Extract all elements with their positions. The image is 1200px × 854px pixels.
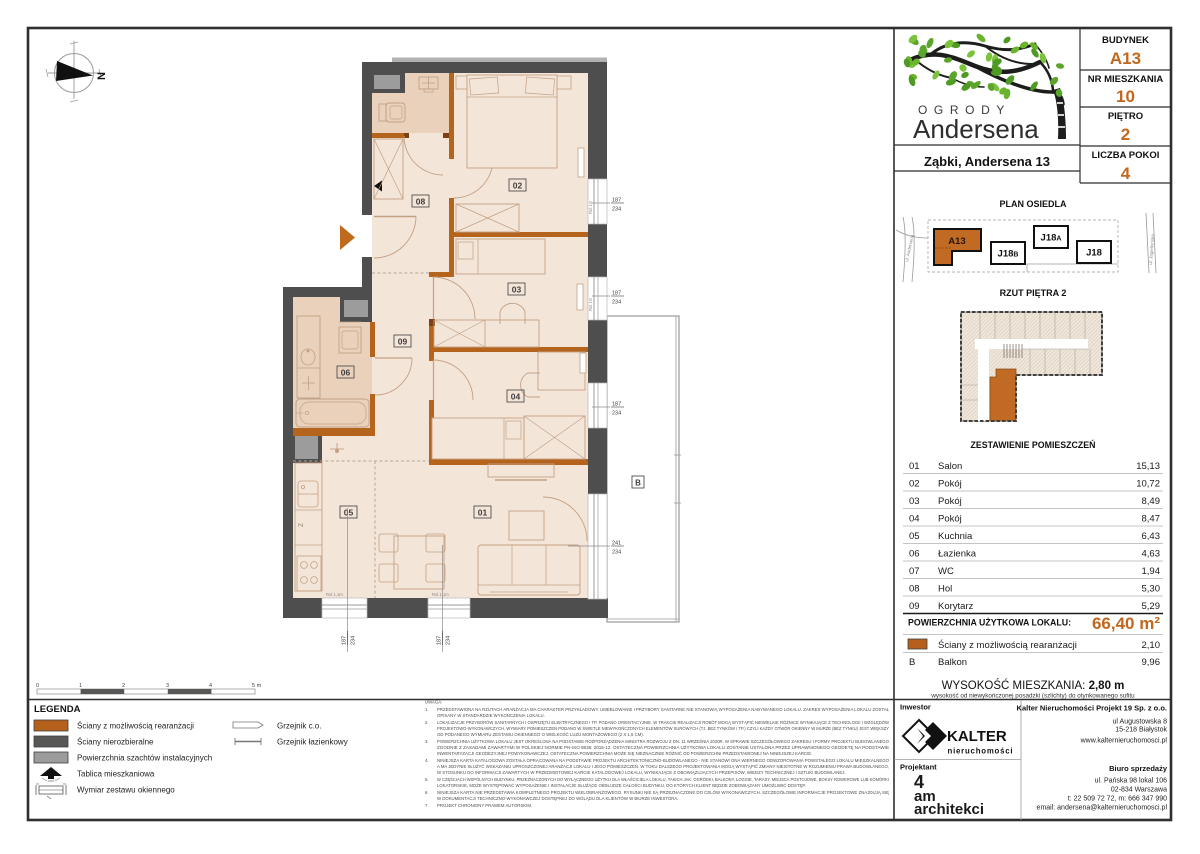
svg-text:03: 03	[909, 496, 920, 507]
svg-text:OD PODANEGO WYMIARU ZESTAWU OK: OD PODANEGO WYMIARU ZESTAWU OKIENNEGO O …	[437, 732, 644, 737]
svg-text:Rol.1m: Rol.1m	[588, 200, 593, 214]
svg-text:187: 187	[342, 636, 348, 645]
svg-text:OPISANY W STANDARDZIE WYKOŃCZE: OPISANY W STANDARDZIE WYKOŃCZENIA LOKALU…	[437, 713, 545, 718]
svg-text:LEGENDA: LEGENDA	[34, 704, 81, 715]
svg-text:Rol.1m: Rol.1m	[588, 297, 593, 311]
svg-text:POWIERZCHNIA UŻYTKOWA LOKALU J: POWIERZCHNIA UŻYTKOWA LOKALU JEST OKREŚL…	[437, 739, 890, 744]
svg-text:5,29: 5,29	[1142, 601, 1161, 612]
svg-text:Inwestor: Inwestor	[900, 703, 931, 712]
svg-text:WYSOKOŚĆ MIESZKANIA: 2,80 m: WYSOKOŚĆ MIESZKANIA: 2,80 m	[942, 679, 1125, 692]
svg-text:W CZĘŚCIACH WSPÓLNYCH BUDYNKU,: W CZĘŚCIACH WSPÓLNYCH BUDYNKU, PRZEZNACZ…	[437, 777, 889, 782]
svg-text:WC: WC	[938, 566, 954, 577]
svg-text:4,63: 4,63	[1142, 549, 1161, 560]
svg-text:Kalter Nieruchomości Projekt 1: Kalter Nieruchomości Projekt 19 Sp. z o.…	[1017, 704, 1167, 713]
svg-text:1: 1	[79, 683, 82, 689]
svg-text:Korytarz: Korytarz	[938, 601, 974, 612]
svg-text:2: 2	[122, 683, 125, 689]
svg-text:Ściany nierozbieralne: Ściany nierozbieralne	[77, 738, 154, 747]
svg-text:9,96: 9,96	[1142, 657, 1161, 668]
svg-text:01: 01	[909, 461, 920, 472]
svg-text:04: 04	[909, 514, 920, 525]
svg-text:05: 05	[344, 508, 354, 518]
svg-text:0: 0	[36, 683, 39, 689]
svg-text:234: 234	[612, 411, 621, 417]
svg-text:B: B	[909, 657, 915, 668]
svg-text:N: N	[96, 72, 108, 80]
svg-text:1.: 1.	[425, 707, 429, 712]
svg-text:15,13: 15,13	[1136, 461, 1160, 472]
svg-text:W STOSUNKU DO INFORMACJI ZAWAR: W STOSUNKU DO INFORMACJI ZAWARTYCH W PRZ…	[437, 770, 846, 775]
svg-text:187: 187	[612, 402, 621, 408]
svg-text:187: 187	[612, 291, 621, 297]
svg-text:J18: J18	[1086, 248, 1102, 259]
svg-text:PROJEKT CHRONIONY PRAWEM AUTOR: PROJEKT CHRONIONY PRAWEM AUTORSKIM.	[437, 803, 532, 808]
svg-text:B: B	[635, 479, 641, 488]
svg-text:BUDYNEK: BUDYNEK	[1102, 35, 1149, 46]
svg-text:Łazienka: Łazienka	[938, 549, 977, 560]
svg-text:5 m: 5 m	[252, 683, 262, 689]
svg-text:7.: 7.	[425, 803, 429, 808]
svg-text:04: 04	[511, 392, 521, 402]
svg-text:Rol.1,1m: Rol.1,1m	[326, 592, 343, 597]
svg-text:ul. Pańska 98 lokal 106: ul. Pańska 98 lokal 106	[1095, 778, 1167, 785]
svg-text:ZESTAWIENIE POMIESZCZEŃ: ZESTAWIENIE POMIESZCZEŃ	[971, 440, 1096, 450]
svg-text:ul Augustowska 8: ul Augustowska 8	[1113, 719, 1168, 726]
svg-text:08: 08	[416, 197, 426, 207]
svg-text:05: 05	[909, 531, 920, 542]
svg-text:POWIERZCHNIA UŻYTKOWA LOKALU:: POWIERZCHNIA UŻYTKOWA LOKALU:	[908, 618, 1071, 628]
svg-text:4.: 4.	[425, 758, 429, 763]
svg-text:6,43: 6,43	[1142, 531, 1161, 542]
svg-text:architekci: architekci	[914, 801, 984, 818]
svg-text:Salon: Salon	[938, 461, 962, 472]
svg-text:8,47: 8,47	[1142, 514, 1161, 525]
svg-text:INWENTARYZACJI GEODEZYJNEJ POW: INWENTARYZACJI GEODEZYJNEJ POWYKONAWCZEJ…	[437, 751, 812, 756]
svg-text:01: 01	[478, 508, 488, 518]
svg-text:A MA JEDYNIE SŁUŻYĆ WSKAZANIU: A MA JEDYNIE SŁUŻYĆ WSKAZANIU UPROSZCZON…	[437, 764, 889, 769]
svg-text:PLAN OSIEDLA: PLAN OSIEDLA	[999, 199, 1067, 209]
svg-text:nieruchomości: nieruchomości	[948, 747, 1014, 756]
svg-text:09: 09	[909, 601, 920, 612]
svg-text:3: 3	[166, 683, 169, 689]
svg-text:Pokój: Pokój	[938, 496, 962, 507]
svg-text:Grzejnik c.o.: Grzejnik c.o.	[277, 722, 321, 731]
svg-text:Z: Z	[298, 523, 305, 527]
svg-text:Tablica mieszkaniowa: Tablica mieszkaniowa	[77, 770, 155, 779]
svg-text:A13: A13	[1110, 49, 1141, 68]
svg-text:LICZBA POKOI: LICZBA POKOI	[1092, 150, 1160, 161]
svg-text:Ząbki, Andersena 13: Ząbki, Andersena 13	[924, 154, 1050, 169]
svg-text:5,30: 5,30	[1142, 584, 1161, 595]
svg-text:02: 02	[909, 479, 920, 490]
svg-text:NR MIESZKANIA: NR MIESZKANIA	[1088, 74, 1164, 85]
svg-text:2: 2	[1121, 125, 1130, 144]
svg-text:09: 09	[398, 337, 408, 347]
svg-text:2.: 2.	[425, 720, 429, 725]
svg-text:5.: 5.	[425, 777, 429, 782]
svg-text:Rol.1,1m: Rol.1,1m	[432, 592, 449, 597]
svg-text:Powierzchnia szachtów instalac: Powierzchnia szachtów instalacyjnych	[77, 754, 212, 763]
svg-text:234: 234	[351, 636, 357, 645]
svg-text:6.: 6.	[425, 790, 429, 795]
svg-text:10,72: 10,72	[1136, 479, 1160, 490]
svg-text:A13: A13	[948, 236, 965, 247]
svg-text:234: 234	[612, 207, 621, 213]
svg-text:KALTER: KALTER	[947, 728, 1007, 745]
svg-text:PROJEKTOWO-WYKONAWCZYCH. WYMIA: PROJEKTOWO-WYKONAWCZYCH. WYMIARY POMIESZ…	[437, 726, 889, 731]
svg-text:187: 187	[612, 198, 621, 204]
svg-text:NINIEJSZA KARTA NIE PRZEDSTAWI: NINIEJSZA KARTA NIE PRZEDSTAWIA KOMPLETN…	[437, 790, 889, 795]
svg-text:08: 08	[909, 584, 920, 595]
svg-text:Pokój: Pokój	[938, 479, 962, 490]
svg-text:Kuchnia: Kuchnia	[938, 531, 973, 542]
svg-text:Projektant: Projektant	[900, 763, 937, 772]
svg-text:8,49: 8,49	[1142, 496, 1161, 507]
svg-text:234: 234	[446, 636, 452, 645]
svg-text:4: 4	[1121, 164, 1131, 183]
svg-text:03: 03	[512, 285, 522, 295]
svg-text:Ściany z możliwością rearanżac: Ściany z możliwością rearanżacji	[77, 722, 194, 731]
svg-text:www.kalternieruchomosci.pl: www.kalternieruchomosci.pl	[1080, 738, 1168, 745]
svg-text:W DOKUMENTACJI TECHNICZNO-WYKO: W DOKUMENTACJI TECHNICZNO-WYKONAWCZEJ DO…	[437, 796, 678, 801]
svg-text:RZUT PIĘTRA 2: RZUT PIĘTRA 2	[1000, 288, 1067, 298]
svg-text:06: 06	[909, 549, 920, 560]
svg-text:wysokość od niewykończonej pos: wysokość od niewykończonej posadzki (szl…	[930, 693, 1135, 700]
svg-text:234: 234	[612, 550, 621, 556]
svg-text:LOKALIZACJE PRZYBORÓW SANITARN: LOKALIZACJE PRZYBORÓW SANITARNYCH I OSPR…	[437, 720, 890, 725]
svg-text:Biuro sprzedaży: Biuro sprzedaży	[1109, 764, 1168, 773]
svg-text:187: 187	[437, 636, 443, 645]
svg-text:Grzejnik łazienkowy: Grzejnik łazienkowy	[277, 738, 348, 747]
svg-text:email: andersena@kalternieruch: email: andersena@kalternieruchomosci.pl	[1037, 805, 1168, 812]
svg-text:241: 241	[612, 541, 621, 547]
svg-text:4: 4	[209, 683, 212, 689]
svg-text:LOKATORSKIE, MOŻE WYSTĘPOWAĆ W: LOKATORSKIE, MOŻE WYSTĘPOWAĆ WYPOSAŻENIE…	[437, 783, 806, 788]
svg-text:Andersena: Andersena	[913, 114, 1039, 144]
svg-text:07: 07	[909, 566, 920, 577]
svg-text:Pokój: Pokój	[938, 514, 962, 525]
svg-text:2,10: 2,10	[1142, 640, 1161, 651]
svg-text:02-834 Warszawa: 02-834 Warszawa	[1111, 787, 1167, 794]
svg-text:234: 234	[612, 300, 621, 306]
svg-text:t: 22 509 72 72, m: 666 347 99: t: 22 509 72 72, m: 666 347 990	[1068, 796, 1167, 803]
svg-text:10: 10	[1116, 87, 1135, 106]
svg-text:ZGODNIE Z ZASADAMI ZAWARTYMI W: ZGODNIE Z ZASADAMI ZAWARTYMI W POLSKIEJ …	[437, 745, 889, 750]
svg-text:06: 06	[341, 368, 351, 378]
svg-text:UWAGA:: UWAGA:	[425, 700, 442, 705]
svg-text:NINIEJSZA KARTA KATALOGOWA ZOS: NINIEJSZA KARTA KATALOGOWA ZOSTAŁA OPRAC…	[437, 758, 890, 763]
svg-text:PRZEDSTAWIONA NA RZUTACH ARANŻ: PRZEDSTAWIONA NA RZUTACH ARANŻACJA MA CH…	[437, 707, 890, 712]
svg-text:1,94: 1,94	[1142, 566, 1161, 577]
svg-text:15-218 Białystok: 15-218 Białystok	[1115, 727, 1167, 734]
svg-text:Hol: Hol	[938, 584, 952, 595]
svg-text:Wymiar zestawu okiennego: Wymiar zestawu okiennego	[77, 786, 175, 795]
svg-text:Balkon: Balkon	[938, 657, 967, 668]
svg-text:PIĘTRO: PIĘTRO	[1108, 111, 1143, 122]
svg-text:3.: 3.	[425, 739, 429, 744]
svg-text:02: 02	[513, 181, 523, 191]
svg-text:Ściany z możliwością rearanżac: Ściany z możliwością rearanżacji	[938, 639, 1077, 651]
svg-text:66,40 m²: 66,40 m²	[1092, 614, 1160, 633]
